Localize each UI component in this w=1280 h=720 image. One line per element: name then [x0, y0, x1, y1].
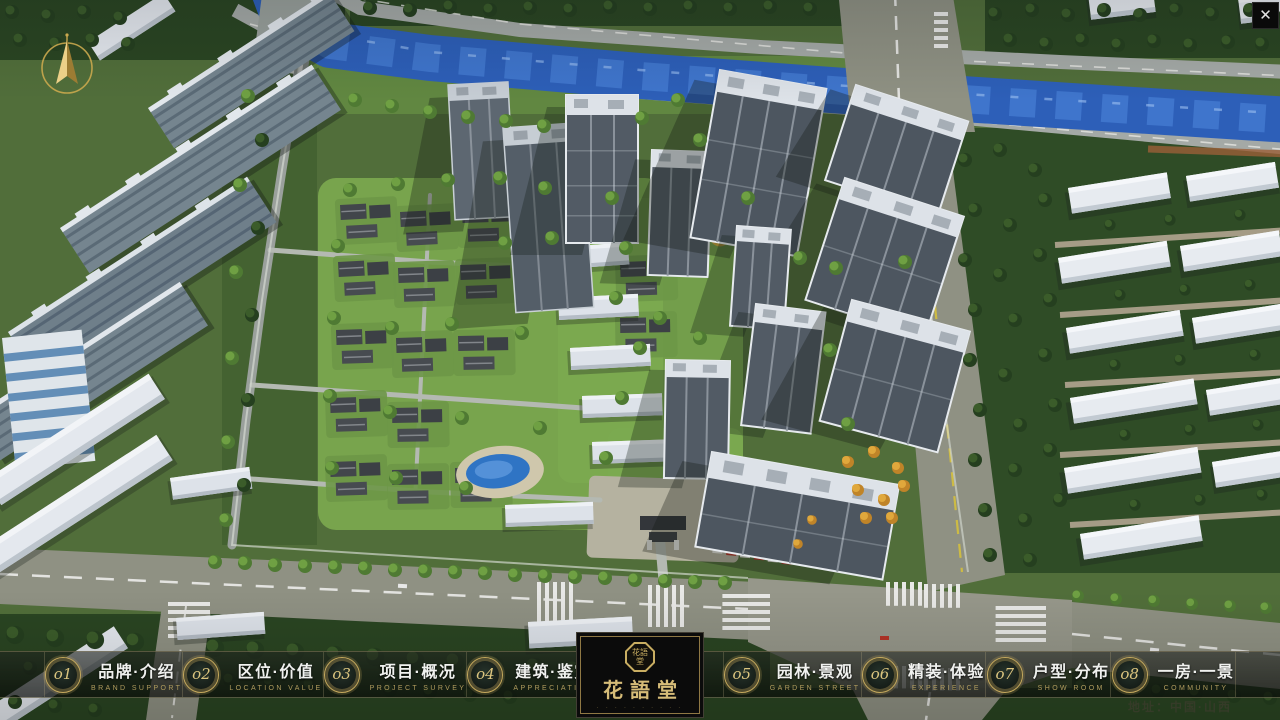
brand-subtext: · · · · · · · · · ·	[597, 705, 683, 711]
compass-icon	[36, 32, 98, 98]
logo-panel[interactable]: 花語堂 花語堂 · · · · · · · · · ·	[576, 632, 704, 718]
brand-seal-icon: 花語堂	[625, 642, 655, 672]
nav-item-interior[interactable]: o6 精装·体验EXPERIENCE	[861, 652, 986, 697]
address-label: 地址：中国·山西	[1128, 698, 1232, 715]
nav-item-subtitle: LOCATION VALUE	[229, 685, 322, 692]
nav-item-title: 园林·景观	[777, 658, 854, 682]
map-viewport[interactable]: ✕ 地址：中国·山西 o1 品牌·介绍BRAND SUPPORT o2 区位·价…	[0, 0, 1280, 720]
nav-item-title: 品牌·介绍	[98, 658, 175, 682]
nav-item-subtitle: GARDEN STREET	[770, 685, 861, 692]
site-plan-3d-view	[0, 0, 1280, 720]
number-badge: o3	[324, 657, 360, 693]
nav-item-subtitle: COMMUNITY	[1164, 685, 1229, 692]
nav-item-project[interactable]: o3 项目·概况PROJECT SURVEY	[323, 652, 467, 697]
nav-item-garden[interactable]: o5 园林·景观GARDEN STREET	[723, 652, 861, 697]
close-button[interactable]: ✕	[1252, 2, 1279, 29]
nav-item-scenery[interactable]: o8 一房·一景COMMUNITY	[1110, 652, 1235, 697]
badge-number: o7	[996, 665, 1015, 683]
badge-number: o3	[332, 665, 351, 683]
seal-text: 花語堂	[631, 648, 649, 666]
badge-number: o4	[476, 665, 495, 683]
badge-number: o5	[732, 665, 751, 683]
number-badge: o8	[1112, 657, 1148, 693]
badge-number: o1	[54, 665, 73, 683]
nav-spacer	[0, 652, 44, 697]
badge-number: o8	[1120, 665, 1139, 683]
nav-item-location[interactable]: o2 区位·价值LOCATION VALUE	[182, 652, 322, 697]
nav-spacer	[1235, 652, 1280, 697]
nav-item-subtitle: BRAND SUPPORT	[91, 685, 182, 692]
nav-item-title: 一房·一景	[1158, 658, 1235, 682]
nav-item-subtitle: SHOW ROOM	[1038, 685, 1105, 692]
badge-number: o2	[192, 665, 211, 683]
nav-item-brand[interactable]: o1 品牌·介绍BRAND SUPPORT	[44, 652, 182, 697]
number-badge: o6	[862, 657, 898, 693]
number-badge: o1	[45, 657, 81, 693]
number-badge: o7	[987, 657, 1023, 693]
nav-item-title: 区位·价值	[238, 658, 315, 682]
number-badge: o5	[724, 657, 760, 693]
brand-name: 花語堂	[596, 674, 684, 703]
number-badge: o4	[467, 657, 503, 693]
close-icon: ✕	[1259, 8, 1272, 23]
badge-number: o6	[871, 665, 890, 683]
nav-item-title: 项目·概况	[380, 658, 457, 682]
nav-item-title: 精装·体验	[908, 658, 985, 682]
nav-item-title: 户型·分布	[1033, 658, 1110, 682]
nav-item-subtitle: PROJECT SURVEY	[370, 685, 467, 692]
number-badge: o2	[183, 657, 219, 693]
nav-item-floorplan[interactable]: o7 户型·分布SHOW ROOM	[985, 652, 1110, 697]
nav-item-architecture[interactable]: o4 建筑·鉴赏APPRECIATION	[466, 652, 593, 697]
nav-item-subtitle: EXPERIENCE	[912, 685, 981, 692]
